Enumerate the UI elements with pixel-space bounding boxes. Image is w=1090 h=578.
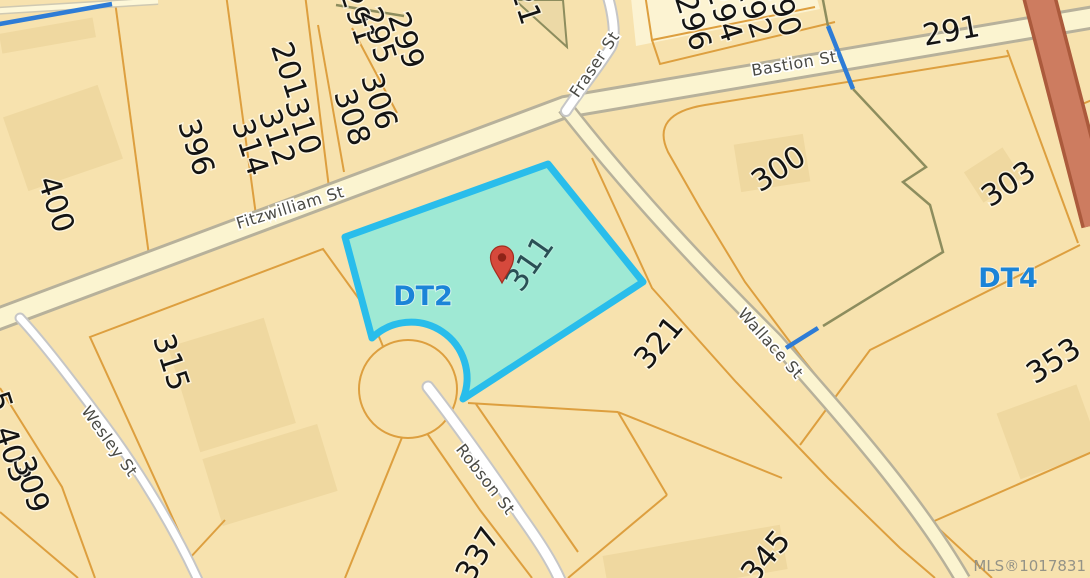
- mls-watermark: MLS®1017831: [973, 557, 1086, 575]
- zone-label-dt2: DT2: [393, 281, 453, 312]
- cul-de-sac-bulb: [359, 340, 457, 438]
- map-viewport[interactable]: Fitzwilliam St Bastion St Fraser St Wall…: [0, 0, 1090, 578]
- parcel-map-canvas: Fitzwilliam St Bastion St Fraser St Wall…: [0, 0, 1090, 578]
- zone-label-dt4: DT4: [978, 263, 1038, 294]
